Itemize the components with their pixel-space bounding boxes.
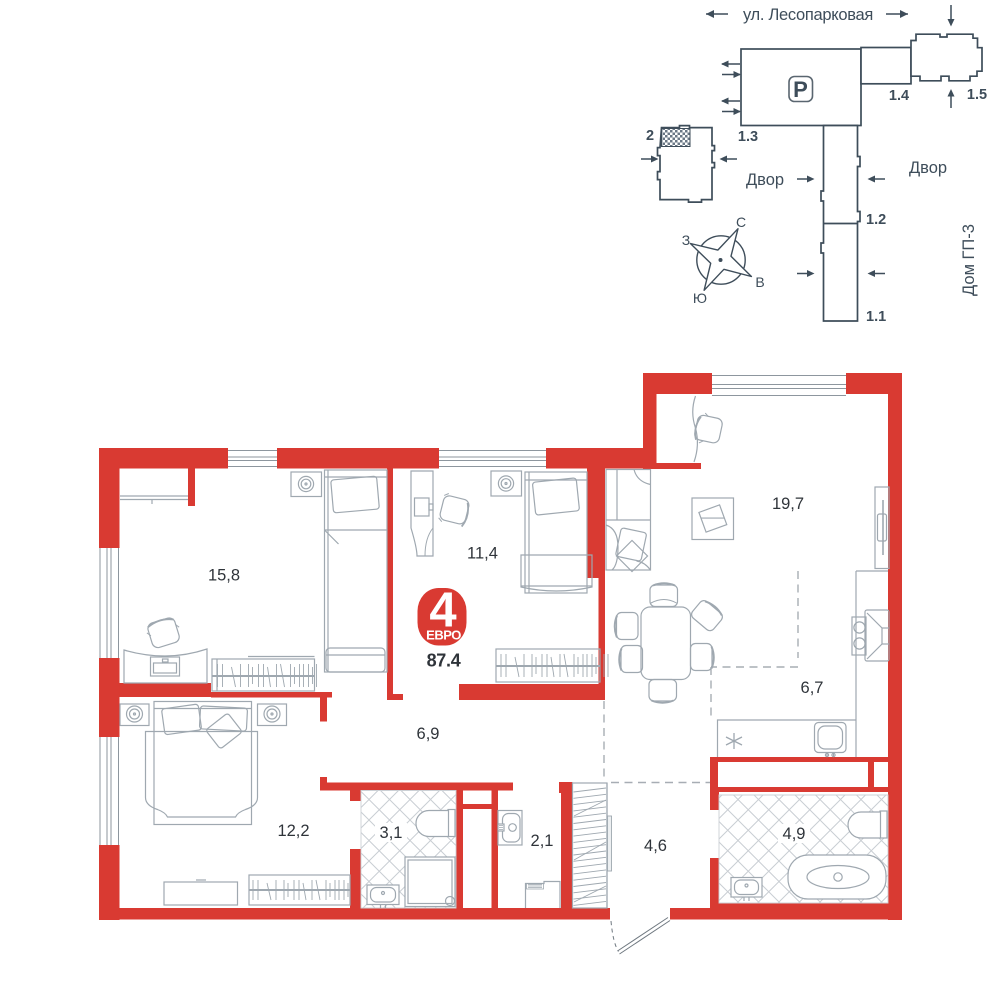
svg-text:11,4: 11,4 xyxy=(467,545,498,563)
svg-text:12,2: 12,2 xyxy=(277,822,309,840)
svg-text:19,7: 19,7 xyxy=(772,495,804,513)
svg-text:ул. Лесопарковая: ул. Лесопарковая xyxy=(743,6,873,24)
svg-text:Р: Р xyxy=(793,77,808,102)
svg-text:15,8: 15,8 xyxy=(208,567,240,585)
svg-text:1.1: 1.1 xyxy=(866,309,886,325)
svg-text:6,9: 6,9 xyxy=(417,725,440,743)
svg-text:Дом ГП-3: Дом ГП-3 xyxy=(960,224,978,296)
svg-text:1.4: 1.4 xyxy=(889,88,909,104)
svg-text:1.2: 1.2 xyxy=(866,212,886,228)
svg-text:3,1: 3,1 xyxy=(380,824,403,842)
svg-text:В: В xyxy=(755,274,764,290)
svg-text:Двор: Двор xyxy=(909,159,947,177)
svg-text:Двор: Двор xyxy=(746,171,784,189)
svg-text:ЕВРО: ЕВРО xyxy=(426,628,461,643)
svg-text:Ю: Ю xyxy=(693,290,707,306)
svg-text:2,1: 2,1 xyxy=(531,832,554,850)
svg-text:1.3: 1.3 xyxy=(738,129,758,145)
svg-text:З: З xyxy=(682,232,690,248)
svg-text:87.4: 87.4 xyxy=(427,651,461,671)
svg-text:1.5: 1.5 xyxy=(967,87,987,103)
svg-text:4,6: 4,6 xyxy=(644,837,667,855)
svg-text:2: 2 xyxy=(646,128,654,144)
svg-text:С: С xyxy=(736,214,746,230)
svg-text:6,7: 6,7 xyxy=(801,679,824,697)
svg-text:4,9: 4,9 xyxy=(783,825,806,843)
